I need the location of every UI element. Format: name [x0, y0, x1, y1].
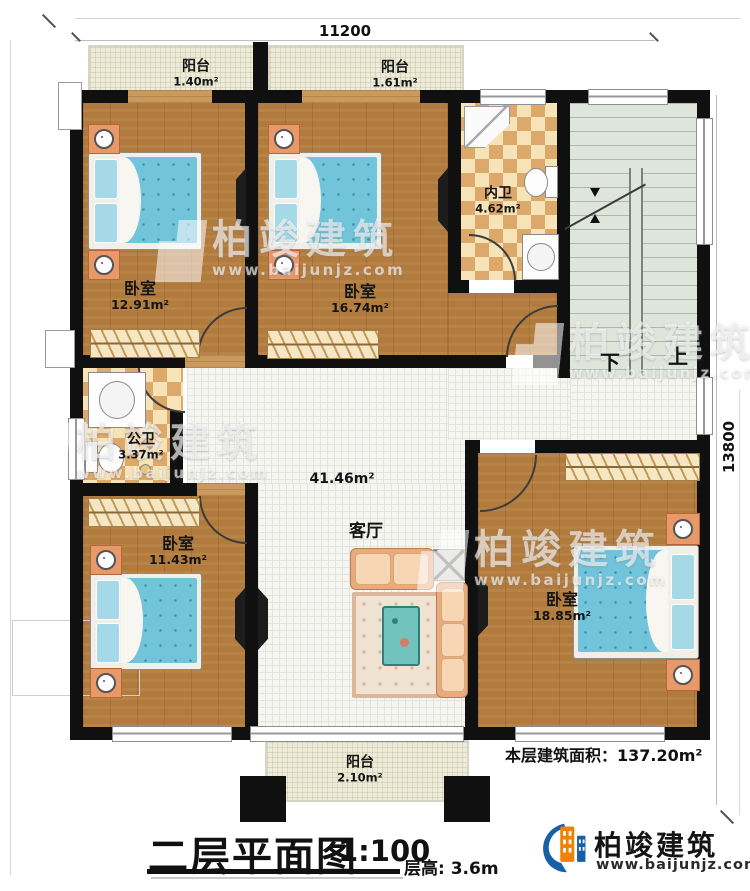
page-frame-left	[10, 40, 11, 875]
room-label-bedroom4: 卧室 18.85m²	[533, 591, 591, 623]
balcony-column-left	[240, 776, 286, 822]
nightstand	[666, 659, 700, 691]
room-area: 12.91m²	[111, 298, 169, 312]
sofa-back	[350, 548, 434, 590]
table-decor	[400, 638, 409, 647]
page-frame-right	[739, 390, 740, 815]
pillow	[96, 623, 120, 663]
wall-bedroom4-top	[535, 440, 710, 453]
dimension-line-right	[716, 95, 717, 805]
bed-bedroom2	[268, 152, 382, 250]
wardrobe-bedroom2	[267, 330, 379, 359]
nightstand	[88, 250, 120, 280]
lamp-icon	[673, 519, 693, 539]
threshold-bedroom3-door	[197, 483, 245, 496]
floor-drain-icon	[140, 464, 151, 475]
room-label-balcony1: 阳台 1.40m²	[173, 60, 218, 89]
room-label-inner-bathroom: 内卫 4.62m²	[475, 187, 520, 216]
room-label-balcony3: 阳台 2.10m²	[337, 756, 382, 785]
sofa-cushion	[355, 553, 391, 585]
nightstand	[90, 668, 122, 698]
stair-railing	[629, 168, 643, 375]
floor-balcony-top-right	[268, 45, 464, 94]
bed-bedroom3	[90, 573, 202, 670]
page-frame-top	[75, 18, 740, 19]
lamp-icon	[94, 255, 114, 275]
room-name: 内卫	[475, 187, 520, 203]
floor-plan-page: 11200 13800	[0, 0, 750, 891]
room-label-balcony2: 阳台 1.61m²	[372, 61, 417, 90]
window-hall-right	[696, 377, 713, 435]
room-area: 16.74m²	[331, 301, 389, 315]
nightstand	[90, 545, 122, 575]
dimension-right-value: 13800	[720, 421, 738, 473]
lamp-icon	[673, 665, 693, 685]
floor-hall-right	[448, 368, 570, 440]
window-living-bottom	[250, 726, 464, 742]
lamp-icon	[96, 673, 116, 693]
floor-area-value: 137.20m²	[617, 746, 702, 765]
room-name: 阳台	[372, 61, 417, 77]
sink-publicbath	[88, 372, 146, 428]
side-table	[433, 549, 465, 581]
pillow	[671, 604, 695, 650]
sofa-cushion	[441, 588, 465, 622]
dimension-line-top	[75, 40, 655, 41]
sink-basin	[99, 381, 135, 419]
room-name: 卧室	[111, 280, 169, 298]
living-room-name: 客厅	[349, 517, 383, 542]
room-area: 2.10m²	[337, 771, 382, 784]
room-name: 阳台	[337, 756, 382, 772]
stair-arrow-up-icon	[590, 214, 600, 223]
stair-label-up: 上	[668, 341, 688, 370]
room-label-public-bathroom: 公卫 3.37m²	[118, 433, 163, 462]
watermark-logo-icon	[19, 423, 72, 485]
sink-basin	[527, 243, 555, 271]
room-label-bedroom1: 卧室 12.91m²	[111, 280, 169, 312]
brand-logo-icon	[536, 818, 592, 876]
floor-area-note: 本层建筑面积：137.20m²	[505, 742, 702, 766]
threshold-balcony2	[302, 90, 420, 103]
sofa-cushion	[441, 658, 465, 692]
pillow	[94, 159, 118, 199]
room-area: 1.40m²	[173, 75, 218, 88]
corner-tick-topleft	[42, 14, 56, 28]
nightstand	[88, 124, 120, 154]
room-area: 18.85m²	[533, 609, 591, 623]
sofa-cushion	[393, 553, 429, 585]
wall-innerbath-bottom-stub	[461, 280, 469, 293]
sink-innerbath	[522, 234, 559, 280]
corner-tick-bottomright	[720, 810, 734, 824]
window-publicbath-left	[68, 418, 85, 480]
lamp-icon	[94, 129, 114, 149]
room-area: 1.61m²	[372, 76, 417, 89]
balcony-column-right	[444, 776, 490, 822]
wall-bedroom2-innerbath	[448, 90, 461, 293]
wall-exterior-left	[70, 90, 83, 740]
wall-innerbath-bottom	[514, 280, 557, 293]
lamp-icon	[274, 255, 294, 275]
lamp-icon	[274, 129, 294, 149]
living-room-area: 41.46m²	[309, 471, 374, 487]
pillow	[274, 203, 298, 243]
nightstand	[268, 250, 300, 280]
table-decor	[392, 618, 398, 624]
room-area: 3.37m²	[118, 448, 163, 461]
window-bedroom3-bottom	[112, 726, 232, 742]
window-stairs-top	[588, 89, 668, 105]
floor-height-note: 层高: 3.6m	[404, 854, 499, 879]
room-label-bedroom3: 卧室 11.43m²	[149, 535, 207, 567]
room-area: 4.62m²	[475, 202, 520, 215]
window-innerbath-top	[480, 89, 546, 105]
wall-bedroom3-top	[70, 483, 197, 496]
floor-living-hall	[187, 367, 465, 483]
bed-bedroom1	[88, 152, 202, 250]
nightstand	[268, 124, 300, 154]
wardrobe-bedroom3	[88, 498, 200, 527]
room-name: 卧室	[331, 283, 389, 301]
toilet-tank	[85, 441, 98, 473]
brand-site: www.baijunjz.com	[596, 857, 750, 873]
dimension-top-value: 11200	[319, 22, 371, 40]
room-label-bedroom2: 卧室 16.74m²	[331, 283, 389, 315]
window-stairs-right	[696, 118, 713, 245]
pilaster-top-left	[58, 82, 82, 130]
room-area: 11.43m²	[149, 553, 207, 567]
wall-publicbath-right	[170, 411, 183, 488]
threshold-balcony1	[128, 90, 212, 103]
pillow	[274, 159, 298, 199]
bed-bedroom4	[573, 545, 699, 659]
wardrobe-bedroom4	[565, 453, 700, 481]
wall-suitehall-bottom	[461, 355, 506, 368]
room-name: 卧室	[533, 591, 591, 609]
nightstand	[666, 513, 700, 545]
wardrobe-bedroom1	[90, 329, 200, 358]
lamp-icon	[96, 550, 116, 570]
floor-area-label: 本层建筑面积：	[505, 746, 617, 765]
toilet-bowl	[524, 168, 548, 197]
room-name: 公卫	[118, 433, 163, 449]
stair-label-down: 下	[600, 347, 620, 376]
sofa-side	[436, 582, 468, 698]
pillow	[671, 554, 695, 600]
pillow	[96, 580, 120, 620]
floor-hall-under-stairs	[570, 378, 697, 440]
pillow	[94, 203, 118, 243]
coffee-table	[382, 606, 420, 666]
window-bedroom4-bottom	[515, 726, 665, 742]
brand-logo: 柏竣建筑 www.baijunjz.com	[536, 818, 592, 880]
title-underline	[147, 869, 400, 874]
room-name: 卧室	[149, 535, 207, 553]
sofa-cushion	[441, 623, 465, 657]
title-underline-shadow	[151, 877, 403, 879]
room-name: 阳台	[173, 60, 218, 76]
pilaster-mid-left	[45, 330, 75, 368]
stair-arrow-down-icon	[590, 188, 600, 197]
